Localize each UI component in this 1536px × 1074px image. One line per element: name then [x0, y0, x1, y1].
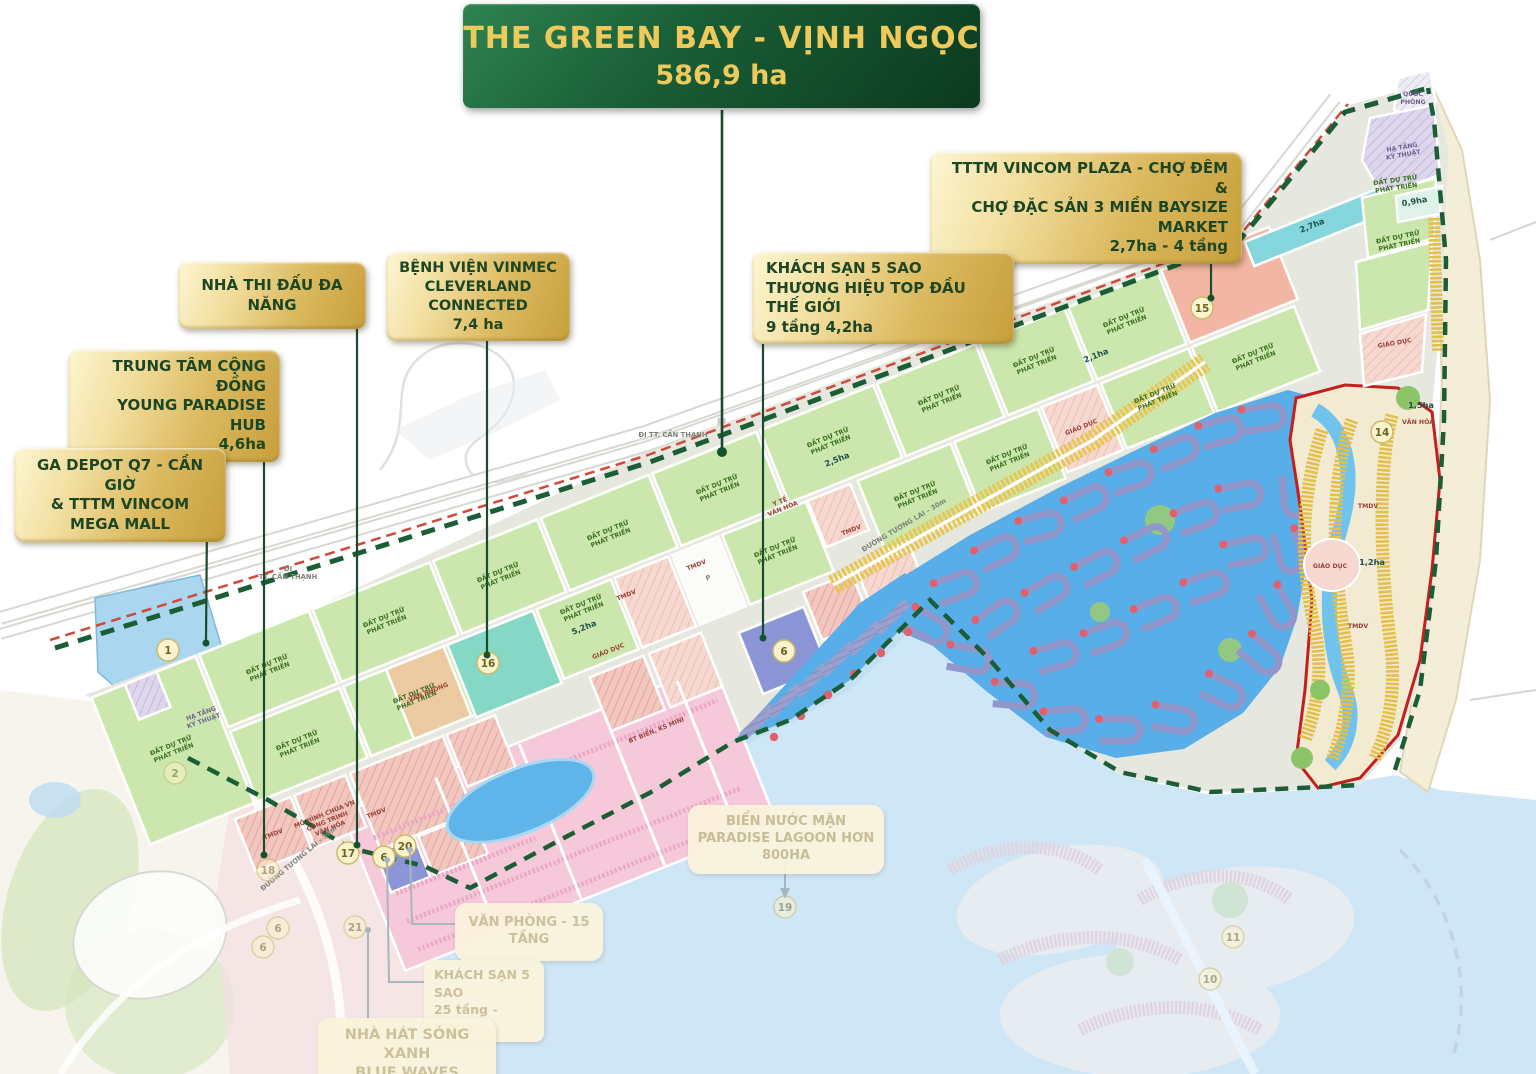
callout-line: TRUNG TÂM CỘNG ĐỒNG: [82, 357, 266, 396]
callout-nha-thi-dau: NHÀ THI ĐẤU ĐA NĂNG: [178, 262, 366, 329]
callout-line: VĂN PHÒNG - 15 TẦNG: [461, 915, 597, 949]
callout-line: CHỢ ĐẶC SẢN 3 MIỀN BAYSIZE MARKET: [944, 198, 1228, 237]
callout-khach-san-5-sao: KHÁCH SẠN 5 SAO THƯƠNG HIỆU TOP ĐẦU THẾ …: [752, 252, 1014, 344]
parcel-label: GIÁO DỤC: [1313, 561, 1348, 570]
svg-text:17: 17: [341, 848, 356, 860]
svg-text:1: 1: [164, 645, 171, 657]
map-marker-6: 6: [252, 936, 274, 958]
master-plan-poster: ĐẤT DỰ TRỮPHÁT TRIỂNĐẤT DỰ TRỮPHÁT TRIỂN…: [0, 0, 1536, 1074]
callout-line: BLUE WAVES THEATRE: [322, 1064, 492, 1074]
svg-text:18: 18: [261, 865, 276, 877]
svg-text:15: 15: [1195, 303, 1210, 315]
callout-line: 7,4 ha: [394, 316, 562, 335]
callout-benh-vien-vinmec: BỆNH VIỆN VINMEC CLEVERLAND CONNECTED 7,…: [386, 252, 570, 341]
map-marker-1: 1: [157, 639, 179, 661]
parcel-label: ĐI TT. CẦN THẠNH: [638, 429, 708, 439]
svg-text:6: 6: [259, 942, 266, 954]
map-marker-14: 14: [1371, 421, 1393, 443]
parcel-label: TMDV: [1358, 503, 1379, 510]
callout-line: 9 tầng 4,2ha: [766, 318, 1000, 338]
callout-line: KHÁCH SẠN 5 SAO: [434, 966, 534, 1001]
map-marker-20: 20: [394, 835, 416, 857]
map-marker-2: 2: [164, 762, 186, 784]
callout-line: BIỂN NƯỚC MẶN: [694, 814, 878, 831]
callout-tttm-vincom-plaza: TTTM VINCOM PLAZA - CHỢ ĐÊM & CHỢ ĐẶC SẢ…: [930, 152, 1242, 264]
callout-van-phong: VĂN PHÒNG - 15 TẦNG: [455, 903, 603, 961]
callout-ga-depot: GA DEPOT Q7 - CẦN GIỜ & TTTM VINCOM MEGA…: [14, 448, 226, 542]
callout-line: BỆNH VIỆN VINMEC: [394, 259, 562, 278]
callout-line: GA DEPOT Q7 - CẦN GIỜ: [26, 456, 214, 495]
svg-text:11: 11: [1226, 932, 1241, 944]
svg-text:21: 21: [348, 922, 363, 934]
callout-line: PARADISE LAGOON HƠN 800HA: [694, 831, 878, 865]
villa-cap: [770, 733, 778, 741]
callout-line: MEGA MALL: [26, 515, 214, 535]
svg-text:6: 6: [274, 923, 281, 935]
callout-trung-tam-cong-dong: TRUNG TÂM CỘNG ĐỒNG YOUNG PARADISE HUB 4…: [68, 350, 280, 462]
master-plan-map: ĐẤT DỰ TRỮPHÁT TRIỂNĐẤT DỰ TRỮPHÁT TRIỂN…: [0, 0, 1536, 1074]
svg-text:16: 16: [481, 658, 496, 670]
parcel-label: VĂN HÓA: [1402, 417, 1434, 426]
project-title-banner: THE GREEN BAY - VỊNH NGỌC 586,9 ha: [463, 4, 980, 108]
svg-text:10: 10: [1203, 974, 1218, 986]
project-area: 586,9 ha: [655, 60, 787, 91]
parcel-label: 1,2ha: [1359, 557, 1385, 567]
map-marker-6: 6: [267, 917, 289, 939]
callout-line: YOUNG PARADISE HUB: [82, 396, 266, 435]
svg-text:2: 2: [171, 768, 178, 780]
map-marker-19: 19: [774, 896, 796, 918]
map-marker-21: 21: [344, 916, 366, 938]
callout-line: THƯƠNG HIỆU TOP ĐẦU THẾ GIỚI: [766, 279, 1000, 318]
callout-line: CLEVERLAND CONNECTED: [394, 278, 562, 316]
svg-text:14: 14: [1375, 427, 1390, 439]
callout-line: NHÀ THI ĐẤU ĐA NĂNG: [186, 276, 358, 315]
callout-nha-hat-song-xanh: NHÀ HÁT SÓNG XANH BLUE WAVES THEATRE: [318, 1018, 496, 1074]
callout-bien-nuoc-man: BIỂN NƯỚC MẶN PARADISE LAGOON HƠN 800HA: [688, 805, 884, 874]
parcel-label: QUỐCPHÒNG: [1400, 88, 1425, 106]
svg-text:19: 19: [778, 902, 793, 914]
callout-line: & TTTM VINCOM: [26, 495, 214, 515]
map-marker-6: 6: [373, 846, 395, 868]
map-marker-11: 11: [1222, 926, 1244, 948]
map-marker-6: 6: [773, 640, 795, 662]
villa-cap: [877, 649, 885, 657]
map-marker-18: 18: [257, 859, 279, 881]
callout-line: NHÀ HÁT SÓNG XANH: [322, 1026, 492, 1064]
parcel-label: 1,5ha: [1408, 400, 1434, 410]
callout-line: TTTM VINCOM PLAZA - CHỢ ĐÊM &: [944, 159, 1228, 198]
villa-cap: [904, 628, 912, 636]
svg-text:6: 6: [780, 646, 787, 658]
parcel-label: TMDV: [1348, 623, 1369, 630]
callout-line: KHÁCH SẠN 5 SAO: [766, 259, 1000, 279]
map-marker-10: 10: [1199, 968, 1221, 990]
project-title: THE GREEN BAY - VỊNH NGỌC: [463, 21, 979, 56]
